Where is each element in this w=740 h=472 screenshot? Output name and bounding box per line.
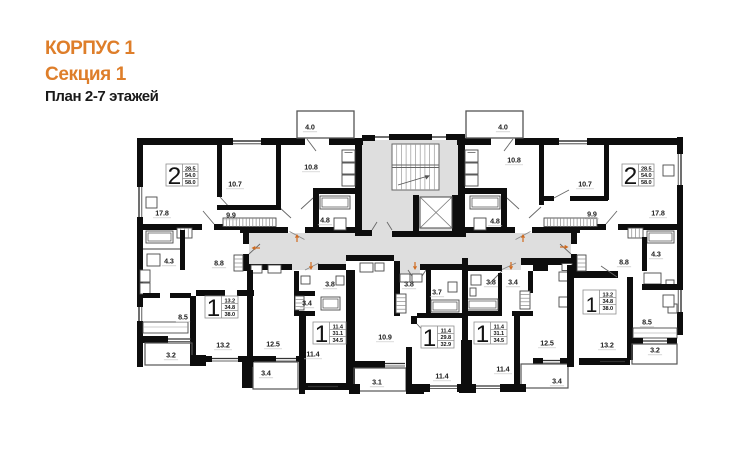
- svg-text:9.9: 9.9: [226, 211, 236, 220]
- svg-text:3.7: 3.7: [432, 288, 442, 297]
- svg-text:1: 1: [586, 294, 598, 317]
- svg-text:2: 2: [624, 163, 638, 190]
- svg-text:10.8: 10.8: [304, 163, 318, 172]
- svg-text:38.0: 38.0: [225, 312, 236, 318]
- svg-text:1: 1: [423, 325, 437, 352]
- svg-text:1: 1: [315, 321, 329, 348]
- svg-text:4.0: 4.0: [498, 123, 508, 132]
- svg-text:11.4: 11.4: [496, 365, 509, 374]
- svg-text:9.9: 9.9: [587, 210, 597, 219]
- svg-text:32.9: 32.9: [441, 342, 452, 348]
- svg-text:Секция 1: Секция 1: [45, 64, 127, 85]
- svg-text:58.0: 58.0: [185, 180, 196, 186]
- svg-text:3.8: 3.8: [404, 280, 414, 289]
- svg-text:3.4: 3.4: [302, 299, 312, 308]
- svg-text:8.5: 8.5: [178, 313, 188, 322]
- svg-text:13.2: 13.2: [216, 341, 230, 350]
- svg-text:4.8: 4.8: [320, 216, 330, 225]
- svg-text:План 2-7 этажей: План 2-7 этажей: [45, 88, 159, 105]
- svg-text:12.5: 12.5: [266, 340, 280, 349]
- svg-text:3.4: 3.4: [552, 377, 562, 386]
- svg-text:3.4: 3.4: [261, 369, 271, 378]
- svg-text:12.5: 12.5: [540, 339, 554, 348]
- svg-text:34.5: 34.5: [494, 338, 505, 344]
- svg-text:17.8: 17.8: [155, 209, 169, 218]
- svg-text:10.9: 10.9: [378, 333, 392, 342]
- svg-text:58.0: 58.0: [641, 180, 652, 186]
- svg-text:3.1: 3.1: [372, 378, 382, 387]
- svg-text:2: 2: [168, 163, 182, 190]
- svg-text:3.8: 3.8: [486, 278, 496, 287]
- svg-text:13.2: 13.2: [600, 341, 614, 350]
- svg-text:4.0: 4.0: [305, 123, 315, 132]
- svg-text:КОРПУС 1: КОРПУС 1: [45, 38, 135, 59]
- svg-text:4.8: 4.8: [490, 217, 500, 226]
- svg-text:38.0: 38.0: [603, 306, 614, 312]
- svg-text:11.4: 11.4: [306, 350, 319, 359]
- svg-text:3.2: 3.2: [650, 346, 660, 355]
- svg-text:3.4: 3.4: [508, 278, 518, 287]
- svg-text:34.5: 34.5: [333, 338, 344, 344]
- svg-text:1: 1: [476, 321, 490, 348]
- svg-text:8.5: 8.5: [642, 318, 652, 327]
- svg-text:17.8: 17.8: [651, 209, 665, 218]
- svg-text:10.8: 10.8: [507, 156, 521, 165]
- svg-text:3.2: 3.2: [166, 351, 176, 360]
- svg-text:4.3: 4.3: [651, 250, 661, 259]
- svg-text:10.7: 10.7: [228, 180, 242, 189]
- svg-text:8.8: 8.8: [619, 258, 629, 267]
- svg-text:1: 1: [207, 295, 221, 322]
- svg-text:11.4: 11.4: [435, 372, 448, 381]
- svg-text:10.7: 10.7: [578, 180, 592, 189]
- svg-text:3.8: 3.8: [325, 280, 335, 289]
- svg-text:4.3: 4.3: [164, 257, 174, 266]
- svg-text:8.8: 8.8: [214, 259, 224, 268]
